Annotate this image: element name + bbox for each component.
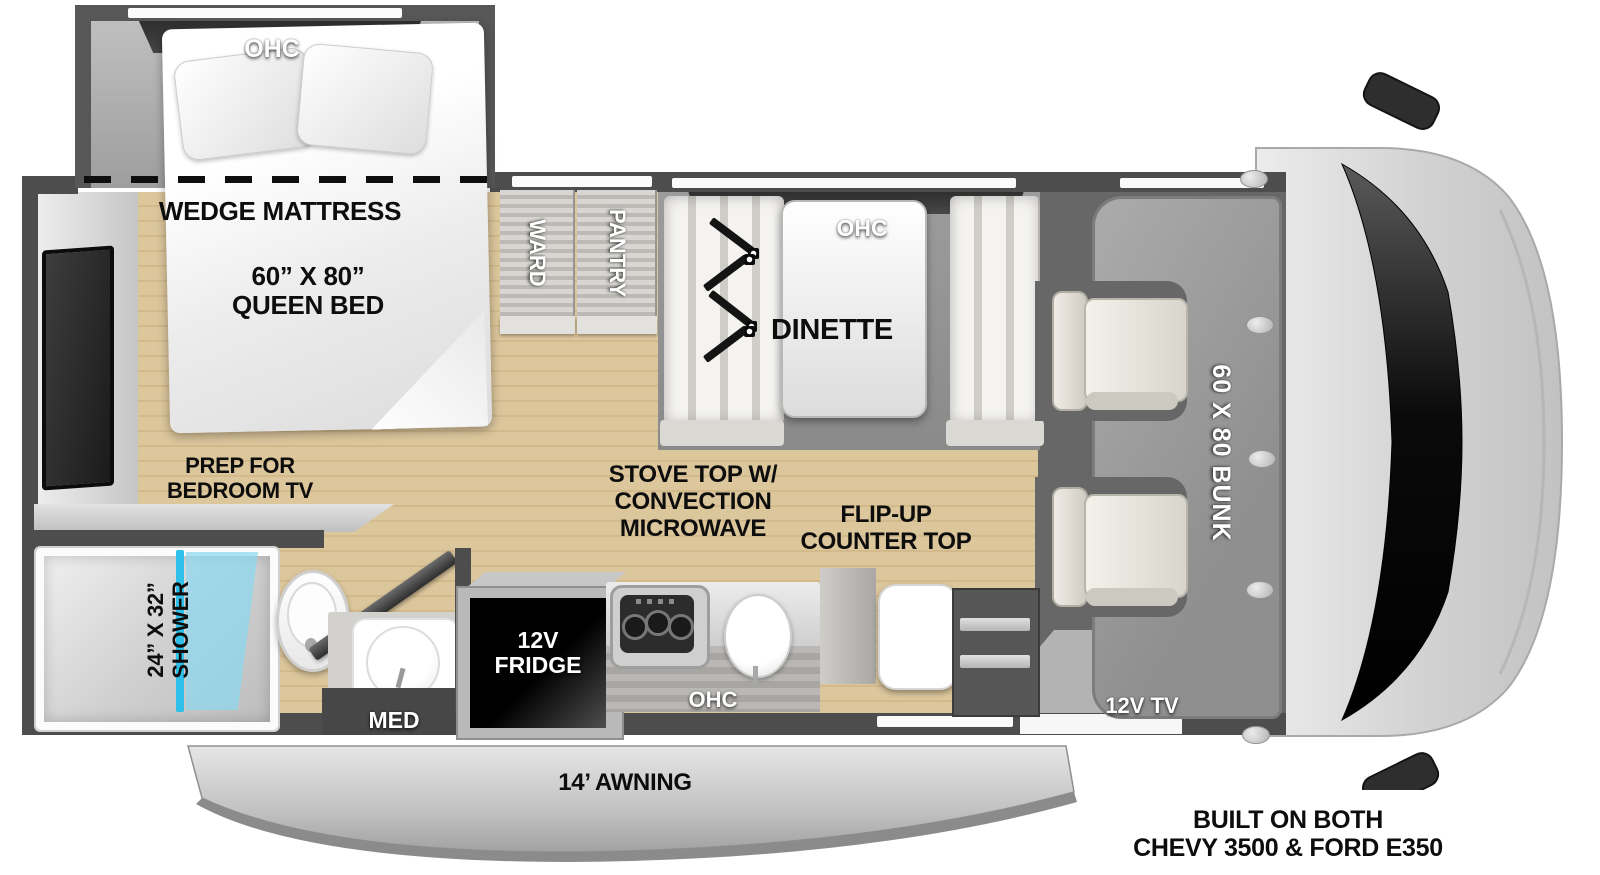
stove-burner-center <box>645 610 671 636</box>
ward-label: WARD <box>525 198 549 308</box>
dinette-bench-left-base <box>660 420 784 446</box>
prep-bedroom-tv-label: PREP FOR BEDROOM TV <box>132 454 348 503</box>
slide-clip-2 <box>1246 316 1274 334</box>
driver-seat-back <box>1052 291 1088 411</box>
dinette-bench-right <box>950 196 1040 424</box>
flip-up-counter <box>878 584 958 690</box>
queen-bed-label: 60” X 80” QUEEN BED <box>198 262 418 320</box>
pantry-label: PANTRY <box>605 198 629 308</box>
stove-knobs <box>636 599 678 604</box>
kitchen-faucet <box>753 666 758 684</box>
bunk-label: 60 X 80 BUNK <box>1206 353 1234 553</box>
slide-clip-1 <box>1240 170 1268 188</box>
window-top-dinette <box>672 178 1016 188</box>
side-mirror-top <box>1360 69 1443 133</box>
entry-step-tread-2 <box>960 655 1030 668</box>
bed-pillow-right <box>296 43 434 156</box>
med-label: MED <box>352 708 436 733</box>
side-mirror-bottom <box>1359 749 1442 790</box>
awning-label: 14’ AWNING <box>535 770 715 797</box>
kitchen-ohc-label: OHC <box>682 688 744 712</box>
awning-shape <box>180 740 1110 868</box>
slide-dashed-line <box>84 176 492 183</box>
passenger-seat-cushion <box>1084 494 1188 598</box>
seat-belt-buckle-2 <box>744 254 755 265</box>
driver-seat-cushion <box>1084 298 1188 402</box>
bedroom-ohc-label: OHC <box>240 36 304 64</box>
window-bottom <box>877 716 1013 727</box>
bed-pillow-left <box>172 46 317 162</box>
passenger-seat-armrest <box>1086 588 1178 606</box>
slide-clip-4 <box>1246 581 1274 599</box>
chassis-label: BUILT ON BOTH CHEVY 3500 & FORD E350 <box>1123 806 1453 862</box>
flip-up-label: FLIP-UP COUNTER TOP <box>791 502 981 556</box>
dinette-bench-right-base <box>946 420 1044 446</box>
kitchen-sink <box>724 594 792 678</box>
counter-end-cabinet <box>820 568 876 684</box>
entry-step-tread-1 <box>960 618 1030 631</box>
wardrobe-face <box>500 316 575 334</box>
passenger-seat-back <box>1052 487 1088 607</box>
bath-wall-top <box>26 530 324 548</box>
shower-label: 24” X 32” SHOWER <box>144 555 196 705</box>
seat-belt-buckle-4 <box>744 326 755 337</box>
fridge-label: 12V FRIDGE <box>470 628 606 679</box>
entry-steps <box>952 588 1040 717</box>
bedroom-slide-wall-left <box>75 5 91 188</box>
stove-label: STOVE TOP W/ CONVECTION MICROWAVE <box>558 462 828 543</box>
bedroom-slide-window <box>128 8 402 18</box>
pantry-face <box>577 316 657 334</box>
slide-clip-5 <box>1242 726 1270 744</box>
slide-clip-3 <box>1248 450 1276 468</box>
dinette-ohc-label: OHC <box>828 216 896 241</box>
driver-seat-armrest <box>1086 392 1178 410</box>
window-top-1 <box>512 176 652 187</box>
stove-burner-right <box>668 614 694 640</box>
stove-burner-left <box>622 614 648 640</box>
bedroom-tv-panel <box>42 245 114 490</box>
bedroom-dresser <box>34 504 394 532</box>
cab-tv-label: 12V TV <box>1090 694 1194 718</box>
rv-floorplan: 14’ AWNING <box>0 0 1600 875</box>
dinette-label: DINETTE <box>757 314 907 346</box>
wedge-mattress-label: WEDGE MATTRESS <box>145 197 415 226</box>
